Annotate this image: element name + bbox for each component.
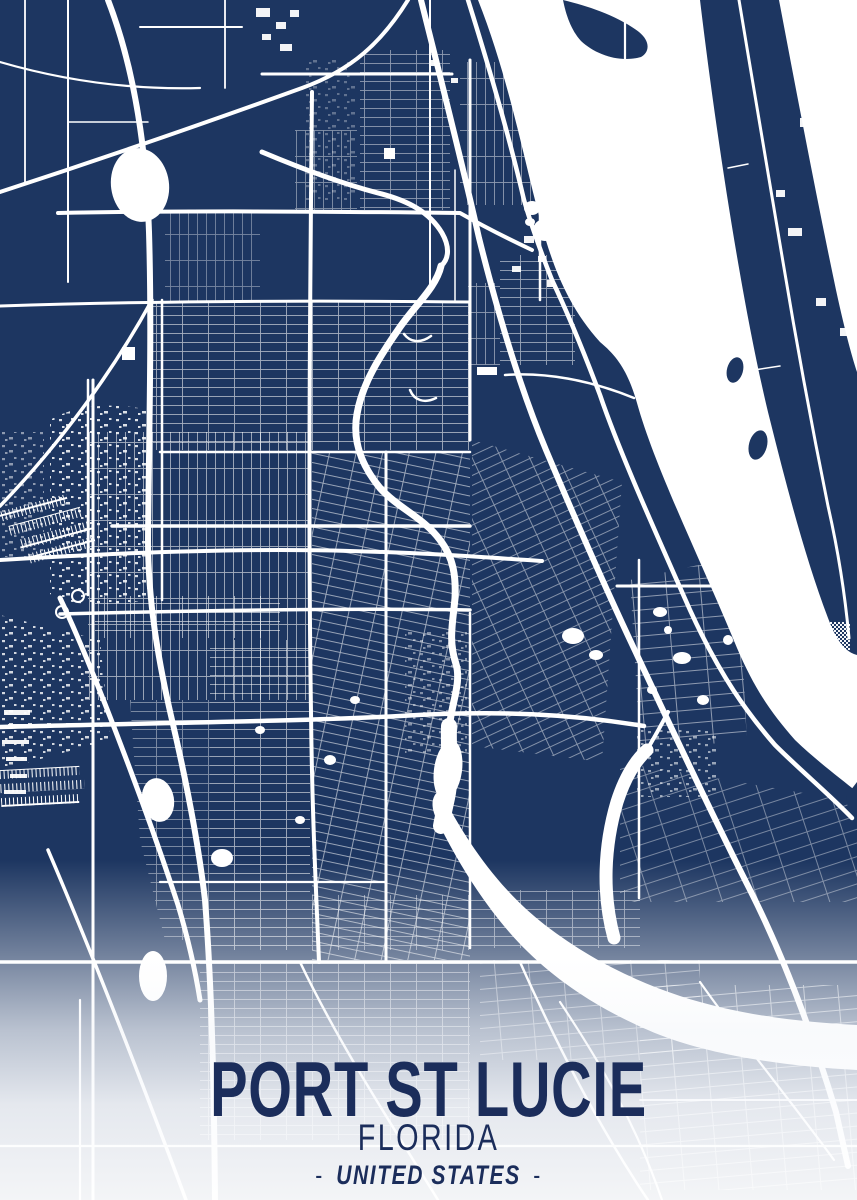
- map-poster: PORT ST LUCIE FLORIDA -UNITED STATES-: [0, 0, 857, 1200]
- fade-overlay: [0, 860, 857, 1200]
- city-map: [0, 0, 857, 1200]
- nettles-island: [818, 622, 850, 650]
- trailer-park-rows-2: [0, 766, 85, 807]
